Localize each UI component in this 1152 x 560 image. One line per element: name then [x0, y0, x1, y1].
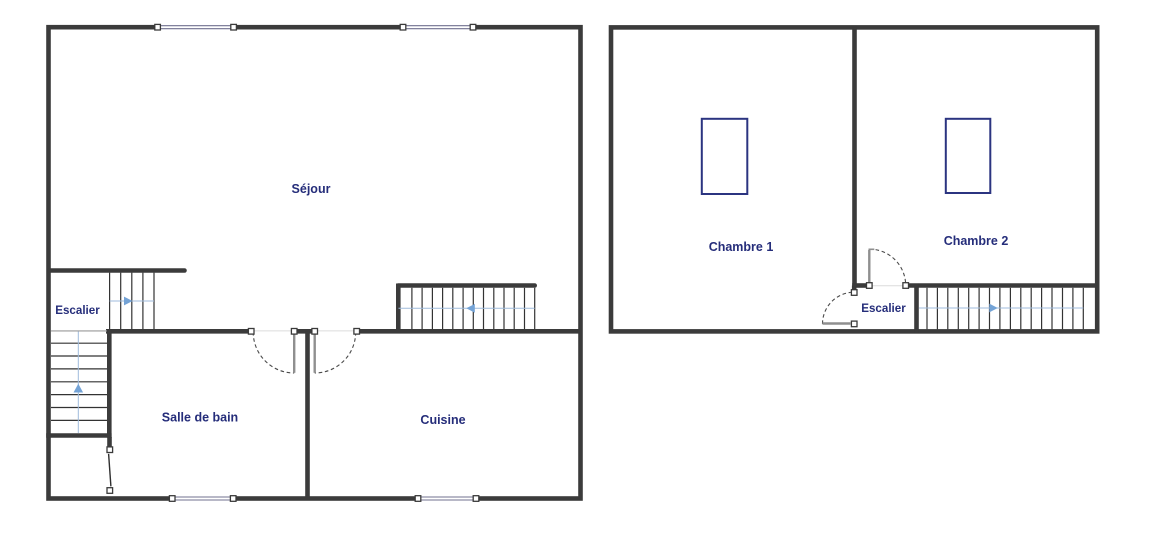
svg-text:Cuisine: Cuisine	[420, 413, 465, 427]
svg-text:Escalier: Escalier	[55, 304, 100, 317]
svg-text:Salle de bain: Salle de bain	[162, 411, 238, 425]
svg-text:Escalier: Escalier	[861, 302, 906, 315]
svg-text:Chambre 1: Chambre 1	[709, 240, 774, 254]
svg-text:Chambre 2: Chambre 2	[944, 234, 1009, 248]
svg-text:Séjour: Séjour	[292, 182, 331, 196]
